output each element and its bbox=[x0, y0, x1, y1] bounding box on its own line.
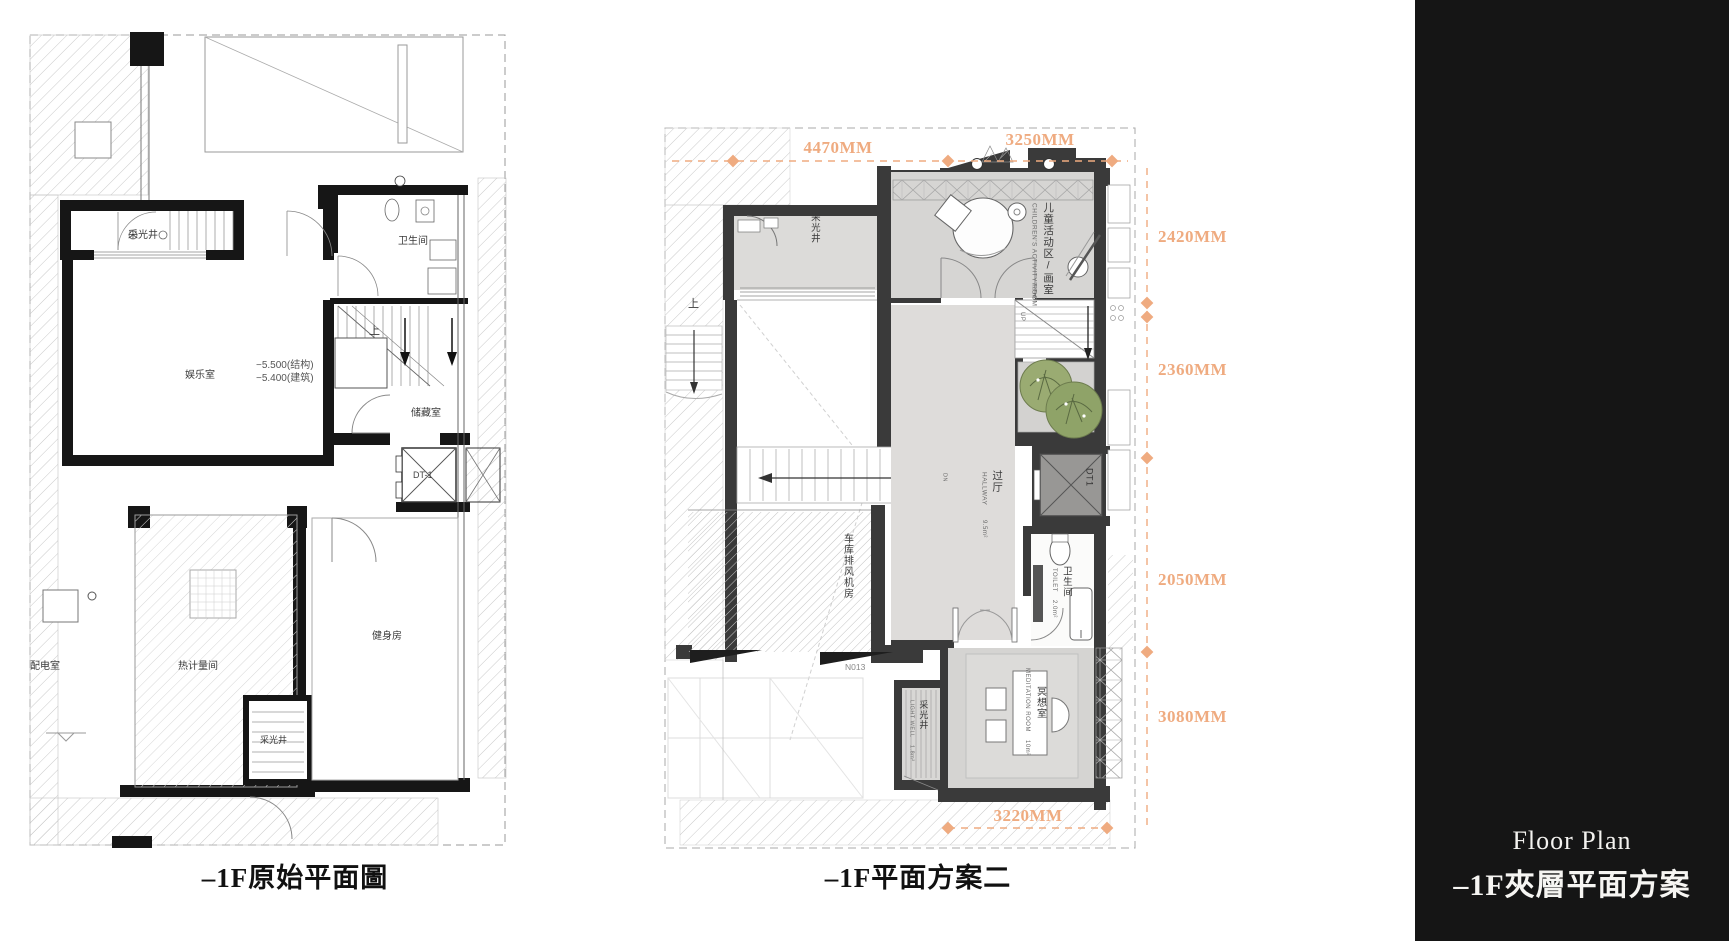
room-label-hallway-zh: 过厅 bbox=[991, 470, 1003, 493]
middle-plan-exterior-stair bbox=[666, 326, 722, 399]
room-label-toilet-zh: 卫生间 bbox=[1060, 566, 1071, 598]
middle-plan-garage-outline bbox=[668, 678, 863, 798]
middle-plan-right-strip bbox=[1108, 185, 1130, 510]
stair-label-dn-m: DN bbox=[941, 473, 947, 482]
room-label-children-zh: 儿童活动区/画室 bbox=[1042, 202, 1054, 296]
side-panel: Floor Plan –1F夾層平面方案 bbox=[1415, 0, 1729, 941]
room-label-meditation-en: MEDITATION ROOM bbox=[1023, 668, 1030, 732]
dimension-right-1: 2420MM bbox=[1158, 227, 1227, 247]
stair-label-up: 上 bbox=[369, 325, 380, 338]
room-label-heat-metering: 热计量间 bbox=[178, 661, 218, 673]
room-label-entertainment: 娱乐室 bbox=[185, 370, 215, 382]
middle-plan-group bbox=[665, 128, 1153, 848]
room-area-children: 7.7m² bbox=[1030, 282, 1037, 301]
level-annotation-architectural: −5.400(建筑) bbox=[256, 373, 314, 385]
room-area-toilet: 2.0m² bbox=[1050, 600, 1057, 618]
left-plan-elevator bbox=[396, 448, 500, 502]
left-plan-top-void bbox=[205, 37, 463, 152]
annotation-n013: N013 bbox=[845, 663, 865, 673]
stair-label-up-en-m: UP bbox=[1018, 312, 1025, 321]
room-label-garage-fan: 车库排风机房 bbox=[841, 533, 853, 599]
room-area-meditation: 10m² bbox=[1023, 740, 1030, 756]
room-label-light-well-top: 采光井 bbox=[128, 230, 158, 242]
room-label-light-well-bottom: 采光井 bbox=[260, 735, 287, 745]
middle-plan-children-room bbox=[891, 172, 1100, 298]
middle-plan-fan-room bbox=[688, 510, 893, 665]
panel-title-en: Floor Plan bbox=[1512, 826, 1631, 856]
left-plan-caption: –1F原始平面圖 bbox=[202, 856, 389, 895]
room-label-storage: 储藏室 bbox=[411, 408, 441, 420]
dimension-right-4: 3080MM bbox=[1158, 707, 1227, 727]
dimension-right-3: 2050MM bbox=[1158, 570, 1227, 590]
dimension-top-left: 4470MM bbox=[803, 138, 872, 158]
left-plan-group bbox=[30, 32, 506, 848]
middle-plan-courtyard bbox=[1018, 360, 1102, 438]
panel-title-zh: –1F夾層平面方案 bbox=[1453, 860, 1690, 904]
room-area-light-well-bottom: 1.8m² bbox=[908, 745, 914, 762]
level-annotation-structural: −5.500(结构) bbox=[256, 360, 314, 372]
room-label-bathroom: 卫生间 bbox=[398, 236, 428, 248]
dimension-right-2: 2360MM bbox=[1158, 360, 1227, 380]
room-label-light-well-top-m: 采光井 bbox=[808, 212, 819, 244]
room-label-light-well-bottom-en-m: LIGHT WELL bbox=[908, 700, 914, 738]
tree-icon bbox=[1046, 382, 1102, 438]
dimension-bottom: 3220MM bbox=[993, 806, 1062, 826]
middle-plan-light-well-top bbox=[734, 216, 877, 296]
room-label-power: 配电室 bbox=[30, 661, 60, 673]
room-label-meditation-zh: 冥想室 bbox=[1034, 686, 1046, 719]
room-label-toilet-en: TOILET bbox=[1050, 568, 1057, 592]
stair-label-up-zh-m: 上 bbox=[688, 298, 699, 311]
middle-plan-up-stairs bbox=[1015, 300, 1094, 360]
elevator-label-left: DT-1 bbox=[413, 470, 433, 480]
elevator-label-middle: DT1 bbox=[1084, 468, 1094, 487]
room-label-gym: 健身房 bbox=[372, 631, 402, 643]
room-area-hallway: 9.5m² bbox=[980, 520, 987, 538]
slide-canvas: 采光井 卫生间 上 娱乐室 −5.500(结构) −5.400(建筑) 储藏室 … bbox=[0, 0, 1729, 941]
dimension-top-right: 3250MM bbox=[1005, 130, 1074, 150]
room-label-light-well-bottom-zh-m: 采光井 bbox=[918, 700, 928, 730]
middle-plan-caption: –1F平面方案二 bbox=[825, 856, 1012, 895]
left-plan-gym bbox=[312, 518, 458, 780]
room-label-hallway-en: HALLWAY bbox=[980, 472, 987, 505]
